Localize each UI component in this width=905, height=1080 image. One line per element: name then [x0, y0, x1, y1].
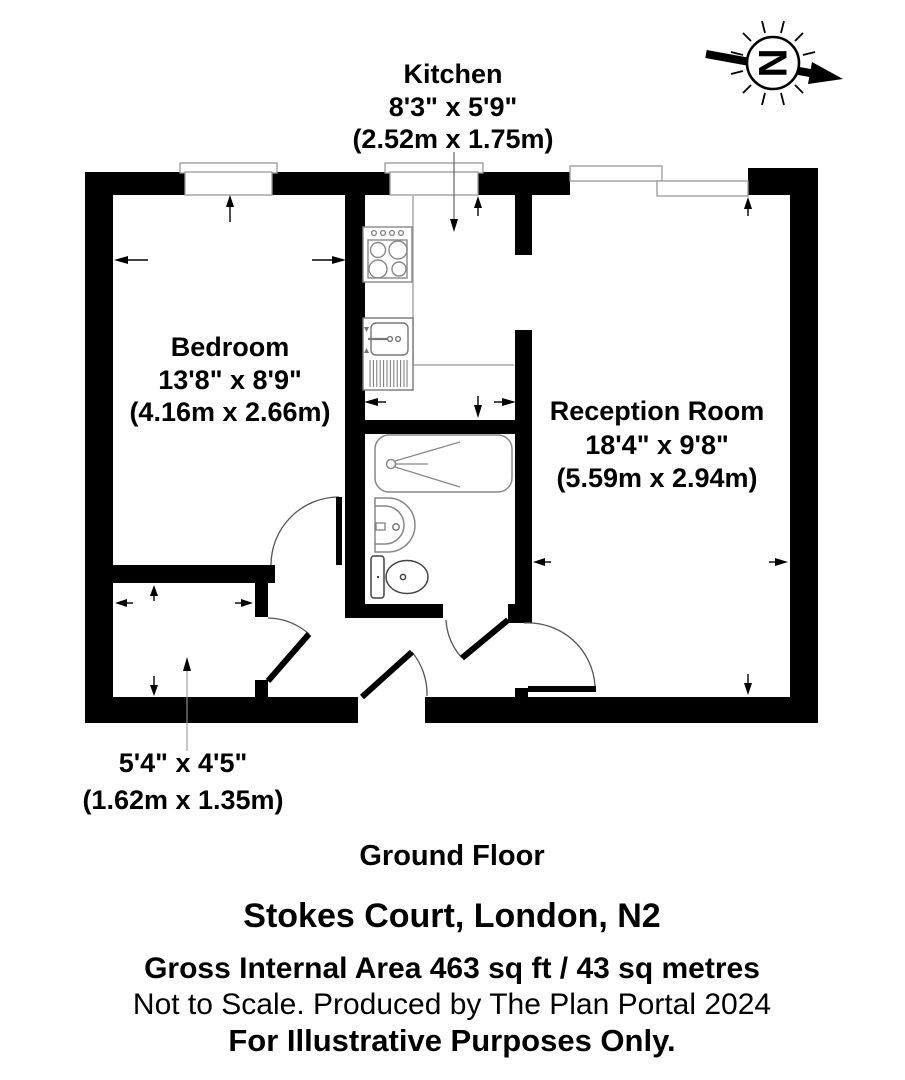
svg-text:(4.16m x 2.66m): (4.16m x 2.66m)	[129, 397, 330, 427]
bedroom-label: Bedroom 13'8" x 8'9" (4.16m x 2.66m)	[129, 332, 330, 427]
kitchen-label: Kitchen 8'3" x 5'9" (2.52m x 1.75m)	[352, 59, 553, 154]
bedroom-door	[271, 497, 339, 565]
stove-icon	[363, 227, 412, 282]
svg-text:Reception Room: Reception Room	[550, 396, 765, 426]
bathroom-fixtures	[371, 435, 512, 598]
compass-letter: N	[750, 49, 794, 78]
kitchen-sink-icon	[363, 318, 413, 390]
area-label: Gross Internal Area 463 sq ft / 43 sq me…	[144, 952, 760, 985]
bathroom-door-leaf	[462, 620, 508, 658]
floorplan-canvas: N Kitchen 8'3" x 5'9" (2.52m x 1.75m) Be…	[0, 0, 905, 1080]
entrance-door	[362, 652, 427, 697]
svg-text:13'8" x 8'9": 13'8" x 8'9"	[158, 365, 302, 395]
svg-text:8'3" x 5'9": 8'3" x 5'9"	[389, 92, 518, 122]
address-label: Stokes Court, London, N2	[243, 897, 660, 935]
svg-text:Kitchen: Kitchen	[403, 59, 502, 89]
produced-label: Not to Scale. Produced by The Plan Porta…	[133, 988, 771, 1021]
doors	[268, 497, 596, 697]
kitchen-fixtures	[363, 196, 514, 390]
bedroom-arrows	[114, 195, 346, 264]
reception-door	[524, 623, 596, 689]
svg-text:(5.59m x 2.94m): (5.59m x 2.94m)	[556, 463, 757, 493]
disclaimer-label: For Illustrative Purposes Only.	[228, 1023, 675, 1058]
cupboard-door-leaf	[268, 634, 309, 681]
basin-icon	[375, 498, 415, 552]
toilet-icon	[371, 556, 428, 598]
hallway-arrows	[115, 585, 253, 751]
hallway-label: 5'4" x 4'5" (1.62m x 1.35m)	[82, 748, 283, 815]
reception-window-right	[657, 181, 748, 196]
floorplan-page: N Kitchen 8'3" x 5'9" (2.52m x 1.75m) Be…	[0, 0, 905, 1080]
svg-text:18'4" x 9'8": 18'4" x 9'8"	[585, 430, 729, 460]
reception-window-left	[570, 166, 662, 181]
kitchen-window	[390, 172, 478, 195]
bathtub-icon	[375, 435, 512, 492]
svg-text:(2.52m x 1.75m): (2.52m x 1.75m)	[352, 124, 553, 154]
bathroom-door	[446, 620, 508, 658]
entrance-door-leaf	[362, 652, 412, 697]
bedroom-window	[185, 172, 272, 195]
reception-label: Reception Room 18'4" x 9'8" (5.59m x 2.9…	[550, 396, 765, 493]
windows	[180, 163, 748, 196]
svg-text:5'4" x 4'5": 5'4" x 4'5"	[119, 748, 248, 778]
kitchen-counter	[413, 196, 514, 365]
svg-text:Bedroom: Bedroom	[171, 332, 290, 362]
svg-text:(1.62m x 1.35m): (1.62m x 1.35m)	[82, 785, 283, 815]
hallway-cupboard-door	[268, 618, 309, 681]
footer: Ground Floor Stokes Court, London, N2 Gr…	[133, 840, 771, 1058]
floor-label: Ground Floor	[359, 840, 544, 872]
north-compass: N	[705, 21, 843, 105]
